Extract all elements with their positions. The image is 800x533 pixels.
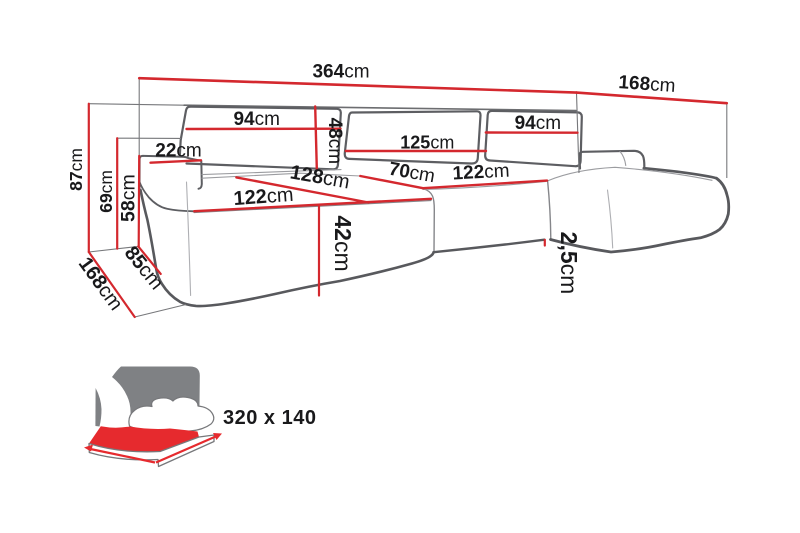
svg-text:364cm: 364cm — [312, 62, 369, 83]
svg-text:2,5cm: 2,5cm — [556, 232, 582, 295]
svg-text:168cm: 168cm — [618, 72, 676, 97]
svg-text:320 x 140: 320 x 140 — [223, 407, 316, 429]
svg-text:94cm: 94cm — [233, 109, 279, 130]
svg-text:22cm: 22cm — [155, 141, 201, 162]
svg-text:48cm: 48cm — [324, 118, 345, 164]
svg-text:69cm: 69cm — [96, 170, 116, 213]
svg-text:85cm: 85cm — [120, 242, 168, 294]
svg-text:58cm: 58cm — [118, 174, 140, 222]
svg-text:94cm: 94cm — [515, 113, 561, 134]
svg-text:122cm: 122cm — [452, 161, 510, 185]
svg-text:125cm: 125cm — [400, 133, 454, 153]
svg-text:87cm: 87cm — [66, 148, 86, 191]
svg-text:168cm: 168cm — [74, 253, 127, 315]
svg-text:42cm: 42cm — [330, 215, 356, 271]
svg-text:122cm: 122cm — [233, 184, 294, 210]
